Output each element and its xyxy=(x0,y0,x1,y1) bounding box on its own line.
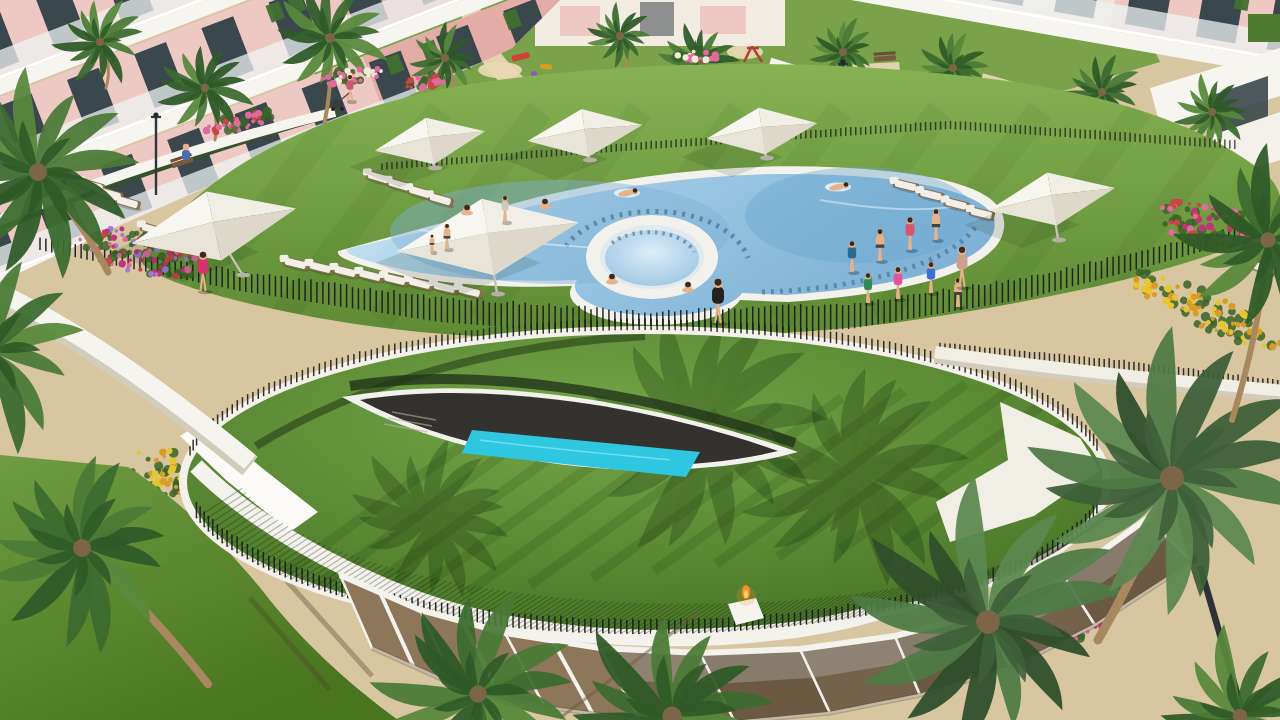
sand-patch xyxy=(478,62,522,78)
rendering-canvas xyxy=(0,0,1280,720)
distant-buildings xyxy=(535,0,785,46)
person xyxy=(182,144,190,160)
resort-aerial-rendering xyxy=(0,0,1280,720)
spa-jacuzzi-pool xyxy=(586,215,718,299)
